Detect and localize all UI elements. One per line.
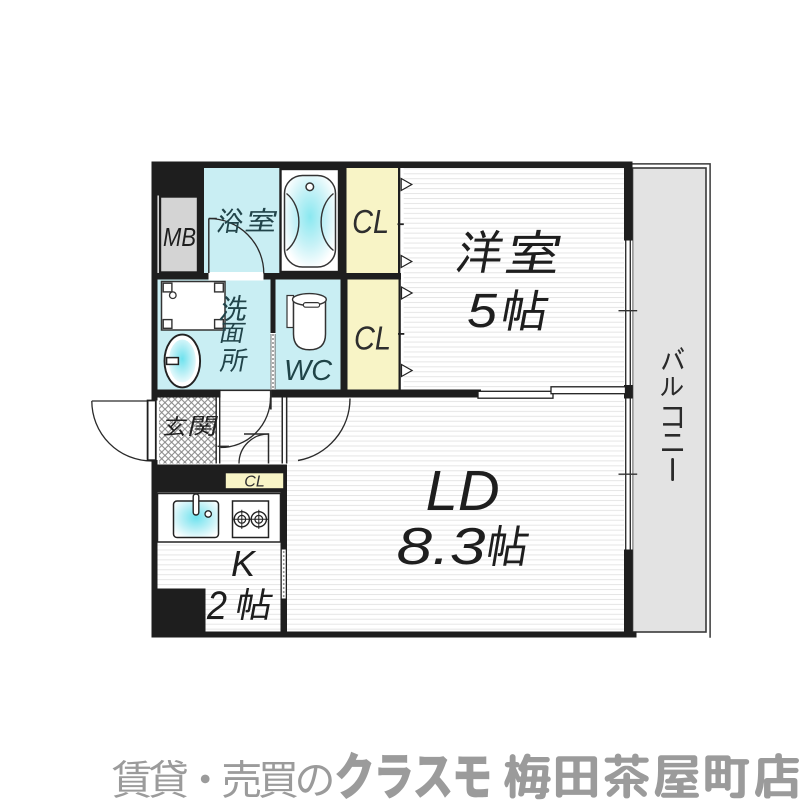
svg-text:K: K xyxy=(231,543,257,584)
svg-text:CL: CL xyxy=(244,474,264,491)
svg-text:8.3: 8.3 xyxy=(397,518,486,576)
svg-text:5: 5 xyxy=(467,285,497,338)
svg-text:2: 2 xyxy=(206,584,227,628)
svg-text:MB: MB xyxy=(163,222,196,252)
svg-text:WC: WC xyxy=(284,355,332,387)
svg-text:CL: CL xyxy=(352,203,389,240)
svg-text:LD: LD xyxy=(426,459,500,523)
svg-text:CL: CL xyxy=(354,320,391,357)
